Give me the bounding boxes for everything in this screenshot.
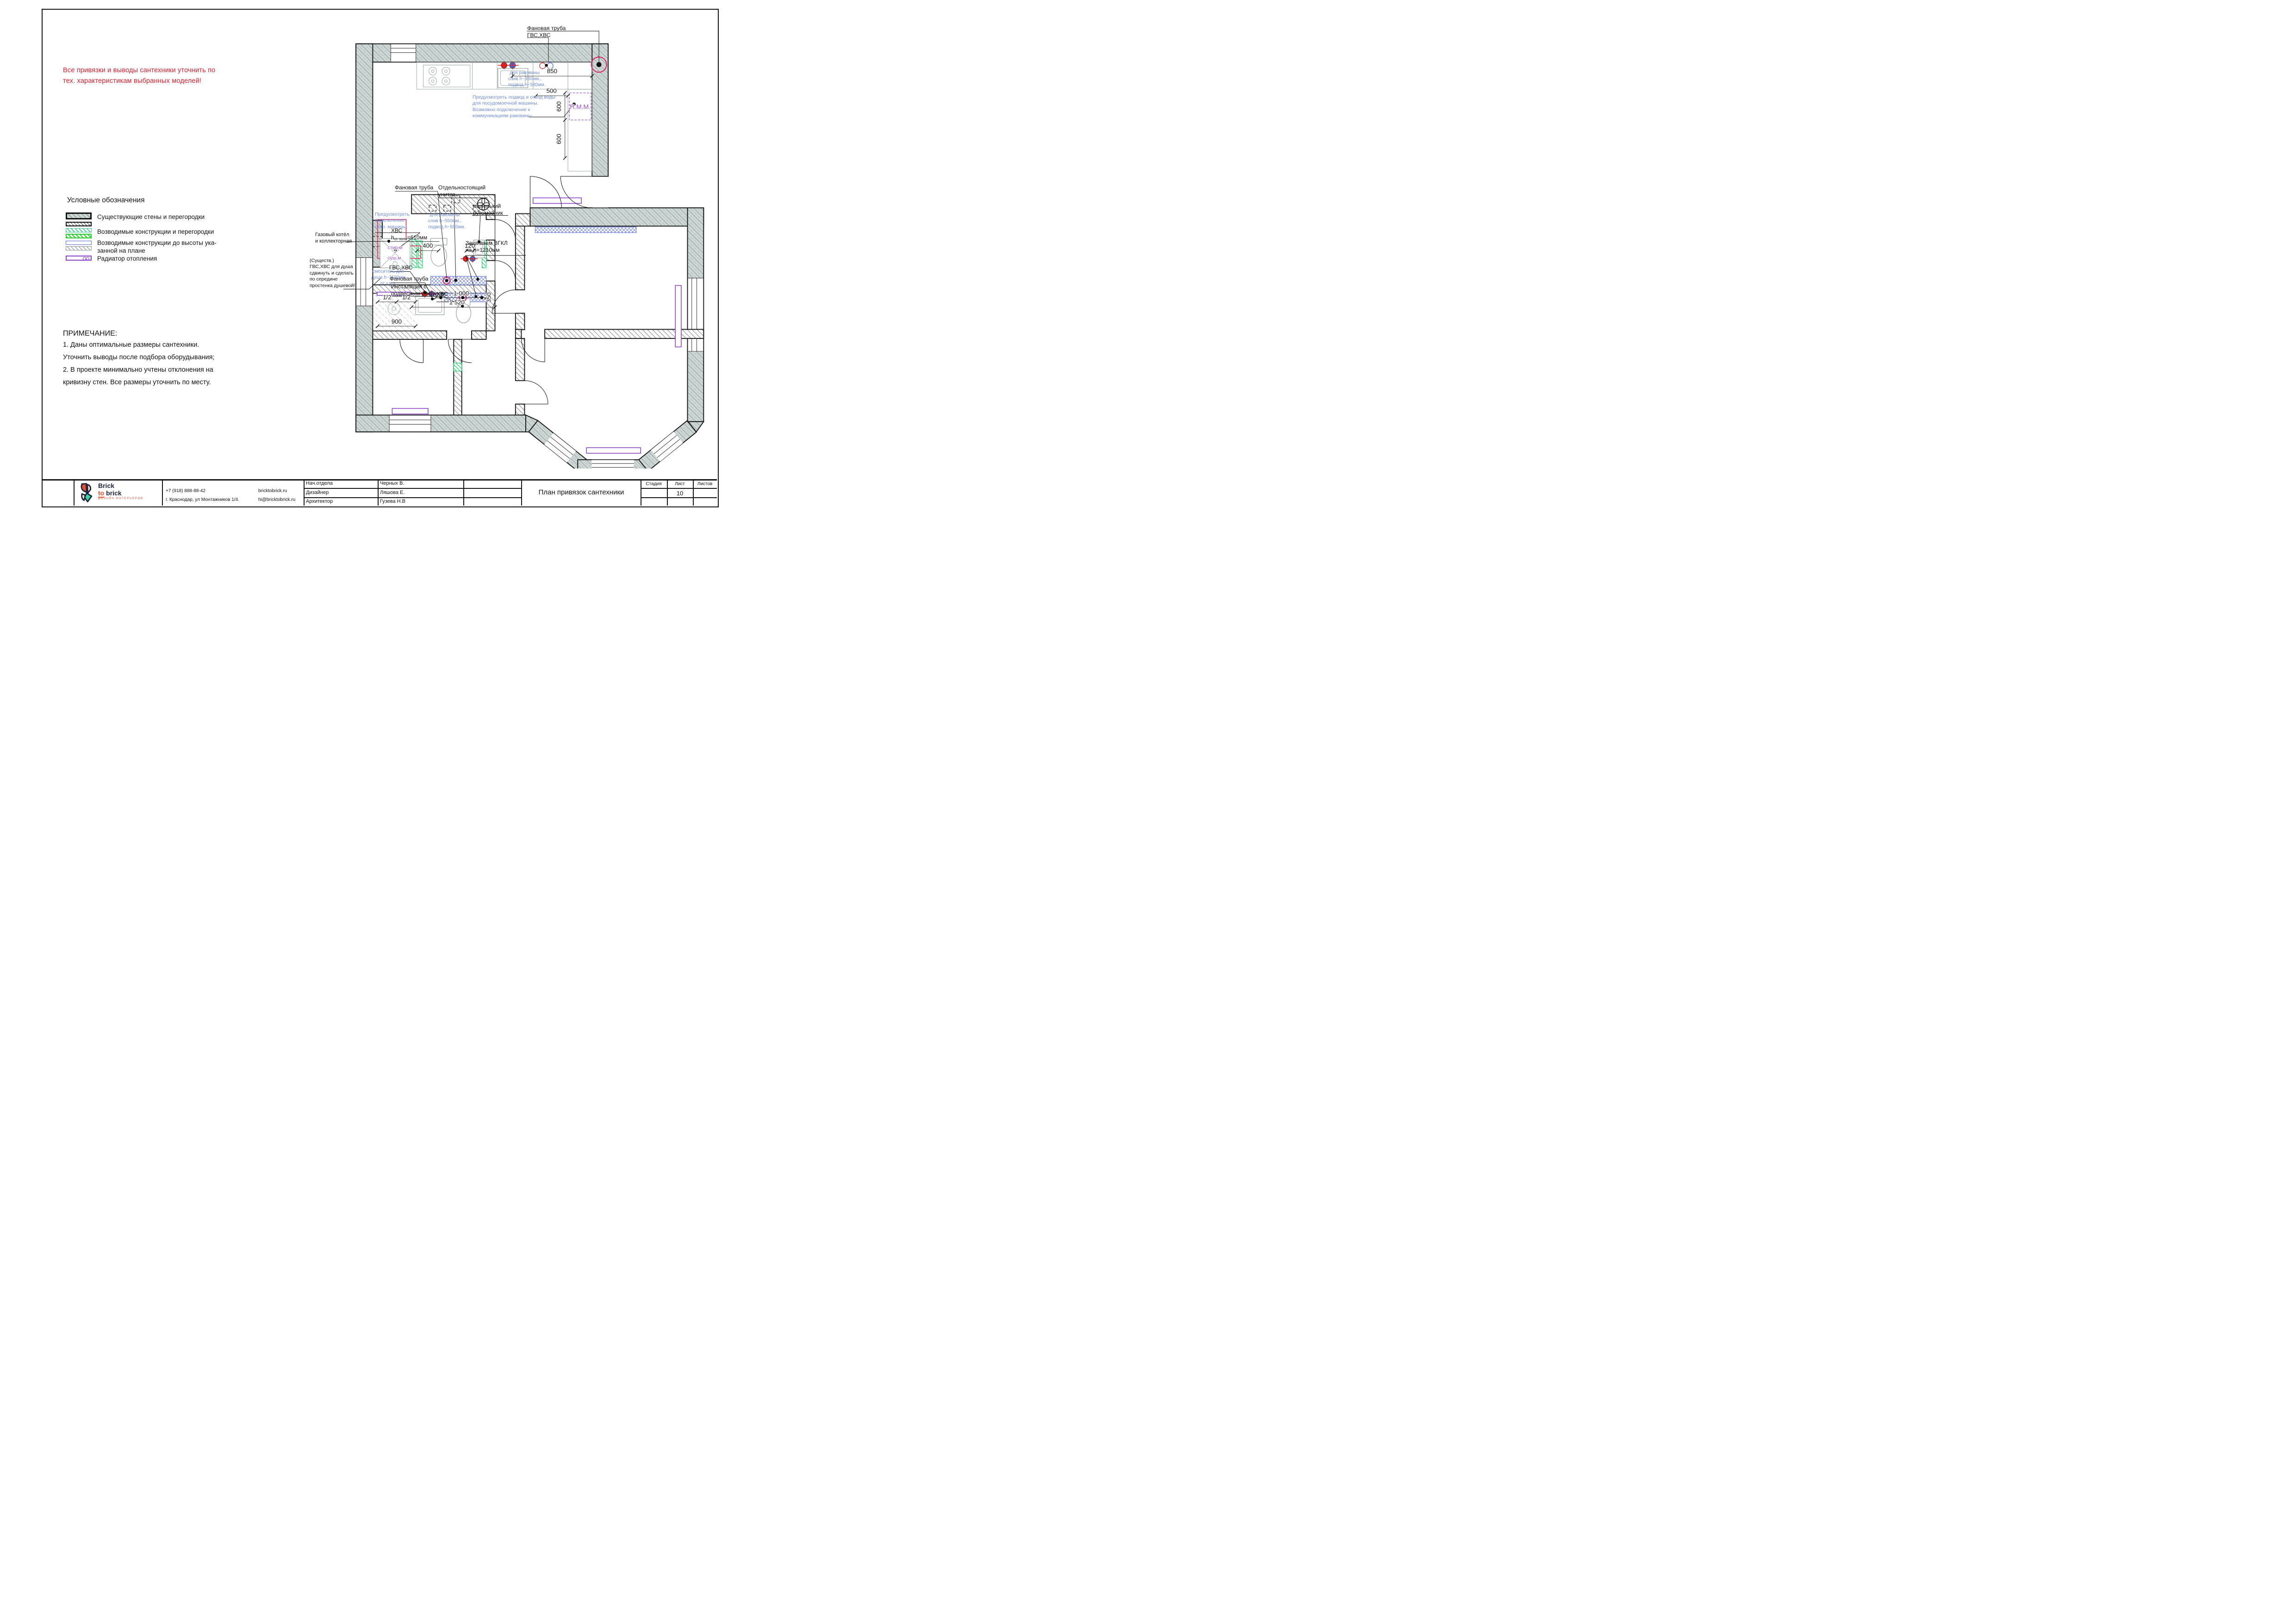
contact-phone: +7 (918) 888-88-42 [166, 488, 205, 493]
dim-350: 350 [485, 292, 492, 302]
staff-name: Черных В. [380, 481, 404, 486]
drawing-title: План привязок сантехники [522, 479, 641, 506]
dishwasher-label: П.М.М. [570, 103, 591, 110]
dim-400: 400 [423, 242, 433, 249]
washer-label-plus: + [393, 250, 396, 256]
brand-logo [78, 481, 94, 504]
legend-swatch-radiator [66, 256, 92, 261]
legend-swatch-new-green [66, 234, 92, 238]
dim-600a: 600 [555, 101, 562, 112]
legend-swatch-lowwall-blue [66, 241, 92, 245]
notes-title: ПРИМЕЧАНИЕ: [63, 330, 117, 338]
hot-outlet-icon [540, 63, 546, 69]
ann-sink-wc: для раковиныслив h~550мм.,подвод h~580мм… [428, 212, 461, 230]
legend-title: Условные обозначения [67, 196, 144, 205]
ann-fan-pipe-top: Фановая труба [527, 25, 566, 32]
dim-1000: 1 000 [454, 290, 469, 297]
legend-swatch-new-teal [66, 228, 92, 232]
contact-address: г. Краснодар, ул Монтажников 1/4. [166, 497, 239, 502]
ann-gvs-bath: ГВС,ХВС [389, 264, 412, 271]
legend-swatch-existing-partition [66, 222, 92, 226]
sheet-number: 10 [667, 490, 693, 497]
legend-label-lowwall-2: занной на плане [97, 247, 145, 254]
kitchen-faucet-icon [498, 62, 519, 69]
radiator-dot-icon [86, 257, 89, 260]
contact-site: bricktobrick.ru [258, 488, 287, 493]
dim-1520: 1 520 [449, 299, 465, 306]
ann-dishwasher-note: Предусмотреть подвод и отвод водыдля пос… [473, 94, 555, 119]
ann-sink-kitchen: для раковиныслив h~350мм.,подвод h~580мм… [508, 70, 540, 88]
red-warning-line2: тех. характеристикам выбранных моделей! [63, 76, 201, 87]
sheets-label: Листов [693, 481, 717, 487]
legend-label-existing: Существующие стены и перегородки [97, 213, 205, 220]
ann-standalone-toilet: Отдельностоящийунитаз [438, 184, 485, 199]
ann-fan-pipe-mid: Фановая труба [395, 184, 433, 191]
staff-role: Архитектор [306, 499, 333, 504]
brand-name: Brick to brick ДИЗАЙН ИНТЕРЬЕРОВ [98, 482, 143, 500]
legend-label-radiator: Радиатор отопления [97, 255, 157, 262]
ann-fan-pipe-bath: Фановая труба [390, 275, 428, 282]
red-warning-line1: Все привязки и выводы сантехники уточнит… [63, 66, 215, 76]
dim-500: 500 [547, 87, 557, 94]
staff-role: Дизайнер [306, 490, 329, 495]
legend-swatch-lowwall-gray [66, 246, 92, 250]
notes-line: 2. В проекте минимально учтены отклонени… [63, 366, 213, 374]
stage-label: Стадия [641, 481, 667, 487]
washer-label-bottom: суш.м. [388, 256, 403, 261]
legend-swatch-existing-wall [66, 212, 92, 219]
notes-line: кривизну стен. Все размеры уточнить по м… [63, 379, 211, 386]
ann-hvs-610: ХВС hот пола=610мм [391, 227, 427, 242]
washer-label-top: стир.м [388, 245, 403, 250]
contact-email: hi@bricktobrick.ru [258, 497, 295, 502]
staff-role: Нач.отдела [306, 481, 333, 486]
drawing-sheet: Все привязки и выводы сантехники уточнит… [0, 0, 727, 514]
ann-gas-boiler: Газовый котёли коллекторная [315, 231, 352, 244]
dim-850: 850 [547, 68, 557, 75]
radiator-dot-icon [83, 257, 86, 260]
legend-label-lowwall-1: Возводимые конструкции до высоты ука- [97, 239, 217, 246]
ann-small-sink: маленькийрукомойник [473, 203, 503, 217]
staff-name: Ляшова Е. [380, 490, 404, 495]
ann-shower-note: (Существ.)ГВС,ХВС для душасдвинуть и сде… [310, 258, 355, 289]
sheet-label: Лист [667, 481, 693, 487]
notes-line: 1. Даны оптимальные размеры сантехники. [63, 341, 199, 349]
ann-hvs-bath: ХВС [437, 291, 448, 298]
ann-vgkl: Зашиваем ВГКЛна h=1210мм [466, 240, 508, 254]
legend-label-new: Возводимые конструкции и перегородки [97, 228, 214, 235]
dim-600b: 600 [555, 134, 562, 144]
dim-900: 900 [392, 318, 402, 325]
dim-half-a: 1/2 [383, 294, 391, 300]
notes-line: Уточнить выводы после подбора оборудыван… [63, 354, 215, 361]
ann-gvs-top: ГВС,ХВС [527, 32, 550, 39]
staff-name: Гузева Н.В [380, 499, 405, 504]
